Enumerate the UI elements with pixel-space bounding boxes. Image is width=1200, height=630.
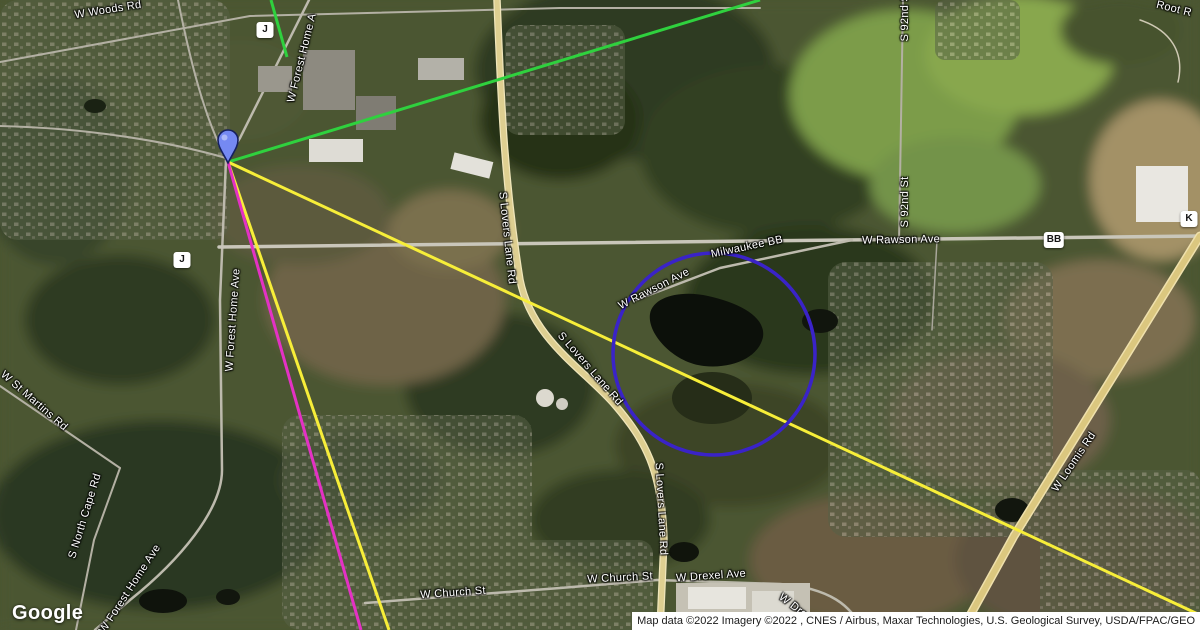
google-logo[interactable]: Google	[12, 603, 83, 623]
attribution-bar: Map data ©2022 Imagery ©2022 , CNES / Ai…	[632, 612, 1200, 630]
map-canvas[interactable]: W Woods Rd W Forest Home A W Forest Home…	[0, 0, 1200, 630]
route-badge-bb: BB	[1044, 232, 1064, 248]
satellite-imagery	[0, 0, 1200, 630]
route-badge-j-north: J	[257, 22, 274, 38]
route-badge-j-south: J	[174, 252, 191, 268]
route-badge-k: K	[1181, 211, 1198, 227]
attribution-text: Map data ©2022 Imagery ©2022 , CNES / Ai…	[637, 612, 1195, 630]
